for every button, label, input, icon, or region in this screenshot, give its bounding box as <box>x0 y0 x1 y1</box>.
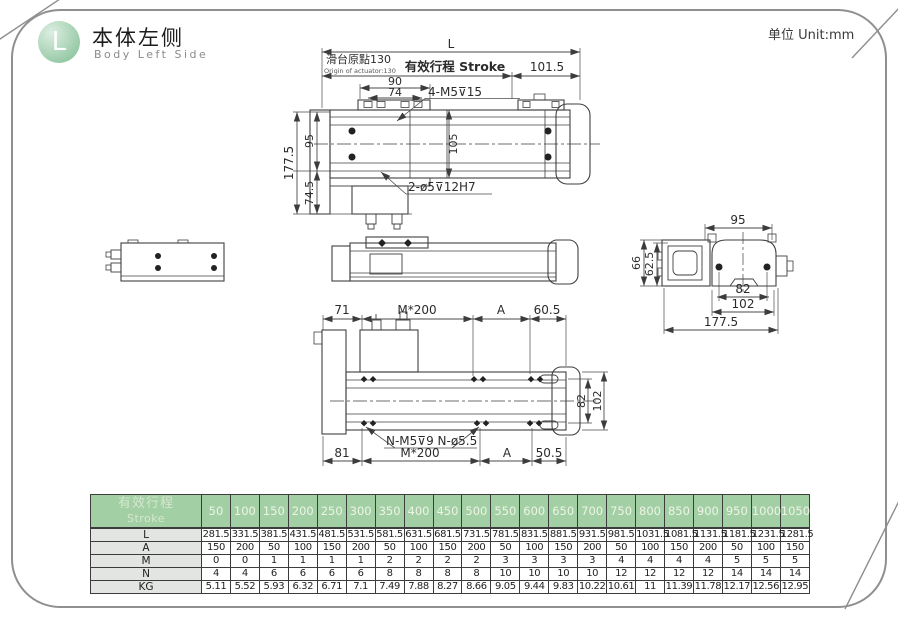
left-small-view-drawing <box>106 240 224 281</box>
stroke-header-en: Stroke <box>91 511 201 526</box>
table-cell: 4 <box>665 555 694 568</box>
table-cell: 150 <box>202 542 231 555</box>
dim-origin-en: Origin of actuator:130 <box>324 67 396 75</box>
callout-m5-holes: 4-M5⊽15 <box>428 85 482 99</box>
dim-end-top-width: 95 <box>730 213 745 227</box>
stroke-col-header: 850 <box>665 495 694 529</box>
table-cell: 100 <box>636 542 665 555</box>
dim-bv-top-right: 60.5 <box>534 303 561 317</box>
table-cell: 50 <box>375 542 404 555</box>
table-cell: 981.5 <box>607 528 636 542</box>
table-cell: 100 <box>751 542 780 555</box>
table-cell: 1 <box>259 555 288 568</box>
table-cell: 681.5 <box>433 528 462 542</box>
dim-height-upper: 95 <box>303 134 316 148</box>
table-cell: 9.05 <box>491 581 520 594</box>
table-cell: 1231.5 <box>751 528 780 542</box>
end-view-drawing <box>658 232 793 292</box>
table-cell: 4 <box>693 555 722 568</box>
dim-bv-right-inner: 82 <box>575 394 588 408</box>
table-row: L281.5331.5381.5431.5481.5531.5581.5631.… <box>91 528 810 542</box>
stroke-col-header: 450 <box>433 495 462 529</box>
table-cell: 9.83 <box>549 581 578 594</box>
table-header-row: 有效行程 Stroke 5010015020025030035040045050… <box>91 495 810 529</box>
table-cell: 1 <box>346 555 375 568</box>
table-cell: 381.5 <box>259 528 288 542</box>
dim-bv-right-outer: 102 <box>591 391 604 412</box>
stroke-col-header: 350 <box>375 495 404 529</box>
stroke-col-header: 500 <box>462 495 491 529</box>
table-cell: 6 <box>259 568 288 581</box>
table-cell: 781.5 <box>491 528 520 542</box>
dim-rail-width: 105 <box>447 134 460 155</box>
dim-bv-top-left: 71 <box>334 303 349 317</box>
table-cell: 3 <box>491 555 520 568</box>
stroke-col-header: 700 <box>578 495 607 529</box>
table-cell: 200 <box>346 542 375 555</box>
dim-end-base-width: 102 <box>732 297 755 311</box>
table-cell: 631.5 <box>404 528 433 542</box>
stroke-header-cell: 有效行程 Stroke <box>91 495 202 529</box>
table-cell: 150 <box>665 542 694 555</box>
table-cell: 2 <box>375 555 404 568</box>
bottom-view-drawing <box>314 312 596 435</box>
table-cell: 8 <box>433 568 462 581</box>
stroke-col-header: 200 <box>288 495 317 529</box>
stroke-col-header: 900 <box>693 495 722 529</box>
table-cell: 12 <box>636 568 665 581</box>
carriage-top <box>358 100 430 110</box>
side-view-drawing <box>332 237 578 284</box>
table-cell: 14 <box>751 568 780 581</box>
table-cell: 931.5 <box>578 528 607 542</box>
table-cell: 3 <box>549 555 578 568</box>
table-cell: 12 <box>693 568 722 581</box>
dim-end-height-total: 66 <box>630 256 643 270</box>
dim-bv-bottom-pitch: M*200 <box>400 446 439 460</box>
table-cell: 5 <box>722 555 751 568</box>
table-cell: 4 <box>636 555 665 568</box>
table-cell: 12.56 <box>751 581 780 594</box>
row-label: L <box>91 528 202 542</box>
table-cell: 8.27 <box>433 581 462 594</box>
table-cell: 10 <box>549 568 578 581</box>
callout-bottom-holes: N-M5⊽9 N-ø5.5 <box>386 434 477 448</box>
table-cell: 50 <box>722 542 751 555</box>
table-cell: 10.22 <box>578 581 607 594</box>
dim-end-slot-width: 82 <box>735 282 750 296</box>
table-cell: 10.61 <box>607 581 636 594</box>
table-cell: 6 <box>288 568 317 581</box>
end-block-top <box>518 94 564 110</box>
stroke-col-header: 650 <box>549 495 578 529</box>
table-cell: 50 <box>259 542 288 555</box>
table-cell: 5.93 <box>259 581 288 594</box>
stroke-col-header: 250 <box>317 495 346 529</box>
stroke-col-header: 1000 <box>751 495 780 529</box>
table-cell: 1 <box>288 555 317 568</box>
dim-bv-bottom-left: 81 <box>334 446 349 460</box>
table-cell: 150 <box>433 542 462 555</box>
table-cell: 100 <box>288 542 317 555</box>
table-cell: 581.5 <box>375 528 404 542</box>
dim-bv-top-a: A <box>497 303 506 317</box>
table-cell: 8 <box>462 568 491 581</box>
dim-height-total: 177.5 <box>282 146 296 180</box>
table-row: M001111222233334444555 <box>91 555 810 568</box>
table-cell: 10 <box>578 568 607 581</box>
dim-end-overall-width: 177.5 <box>704 315 738 329</box>
table-cell: 8 <box>375 568 404 581</box>
table-cell: 0 <box>202 555 231 568</box>
dim-bv-bottom-right: 50.5 <box>536 446 563 460</box>
table-cell: 4 <box>202 568 231 581</box>
unit-label: 单位 Unit:mm <box>768 24 854 43</box>
row-label: N <box>91 568 202 581</box>
table-cell: 14 <box>780 568 809 581</box>
page-subtitle: Body Left Side <box>94 48 208 61</box>
table-cell: 731.5 <box>462 528 491 542</box>
spec-table-body: L281.5331.5381.5431.5481.5531.5581.5631.… <box>91 528 810 594</box>
table-cell: 4 <box>607 555 636 568</box>
stroke-col-header: 300 <box>346 495 375 529</box>
table-cell: 50 <box>607 542 636 555</box>
dim-height-lower: 74.5 <box>303 181 316 206</box>
dim-end-height-inner: 62.5 <box>643 252 656 277</box>
table-cell: 3 <box>578 555 607 568</box>
top-view-labels: L 滑台原點130 Origin of actuator:130 有效行程 St… <box>282 37 564 205</box>
table-cell: 11 <box>636 581 665 594</box>
table-cell: 100 <box>520 542 549 555</box>
table-cell: 150 <box>780 542 809 555</box>
table-cell: 200 <box>230 542 259 555</box>
table-cell: 10 <box>491 568 520 581</box>
table-row: A150200501001502005010015020050100150200… <box>91 542 810 555</box>
table-cell: 150 <box>549 542 578 555</box>
table-cell: 14 <box>722 568 751 581</box>
table-row: N44666688881010101012121212141414 <box>91 568 810 581</box>
dim-stroke-label: 有效行程 Stroke <box>405 59 506 74</box>
table-cell: 50 <box>491 542 520 555</box>
table-cell: 11.78 <box>693 581 722 594</box>
stroke-col-header: 800 <box>636 495 665 529</box>
table-cell: 881.5 <box>549 528 578 542</box>
table-cell: 12.95 <box>780 581 809 594</box>
table-cell: 5 <box>780 555 809 568</box>
table-cell: 1281.5 <box>780 528 809 542</box>
table-cell: 200 <box>693 542 722 555</box>
table-cell: 5.11 <box>202 581 231 594</box>
stroke-col-header: 400 <box>404 495 433 529</box>
table-cell: 11.39 <box>665 581 694 594</box>
spec-table: 有效行程 Stroke 5010015020025030035040045050… <box>90 494 810 594</box>
stroke-col-header: 600 <box>520 495 549 529</box>
table-cell: 6 <box>346 568 375 581</box>
bottom-view-labels: 71 M*200 A 60.5 81 M*200 A 50.5 82 102 N… <box>334 303 604 460</box>
stroke-col-header: 1050 <box>780 495 809 529</box>
table-cell: 9.44 <box>520 581 549 594</box>
row-label: A <box>91 542 202 555</box>
table-cell: 331.5 <box>230 528 259 542</box>
table-cell: 6.71 <box>317 581 346 594</box>
table-cell: 7.88 <box>404 581 433 594</box>
table-cell: 3 <box>520 555 549 568</box>
section-badge: L <box>38 21 80 63</box>
table-cell: 200 <box>462 542 491 555</box>
table-cell: 431.5 <box>288 528 317 542</box>
stroke-col-header: 150 <box>259 495 288 529</box>
stroke-col-header: 950 <box>722 495 751 529</box>
table-cell: 12.17 <box>722 581 751 594</box>
table-cell: 281.5 <box>202 528 231 542</box>
table-cell: 831.5 <box>520 528 549 542</box>
dim-origin-cn: 滑台原點130 <box>326 52 391 66</box>
row-label: KG <box>91 581 202 594</box>
section-badge-letter: L <box>52 27 67 57</box>
table-cell: 5.52 <box>230 581 259 594</box>
stroke-col-header: 100 <box>230 495 259 529</box>
stroke-col-header: 750 <box>607 495 636 529</box>
table-row: KG5.115.525.936.326.717.17.497.888.278.6… <box>91 581 810 594</box>
stroke-col-header: 550 <box>491 495 520 529</box>
table-cell: 2 <box>433 555 462 568</box>
dim-carriage-inner: 74 <box>388 86 402 99</box>
table-cell: 7.49 <box>375 581 404 594</box>
table-cell: 2 <box>462 555 491 568</box>
table-cell: 100 <box>404 542 433 555</box>
stroke-header-cn: 有效行程 <box>91 496 201 511</box>
table-cell: 0 <box>230 555 259 568</box>
dim-bv-top-pitch: M*200 <box>397 303 436 317</box>
table-cell: 1081.5 <box>665 528 694 542</box>
table-cell: 481.5 <box>317 528 346 542</box>
table-cell: 150 <box>317 542 346 555</box>
table-cell: 7.1 <box>346 581 375 594</box>
table-cell: 12 <box>607 568 636 581</box>
table-cell: 2 <box>404 555 433 568</box>
table-cell: 6.32 <box>288 581 317 594</box>
table-cell: 1131.5 <box>693 528 722 542</box>
table-cell: 12 <box>665 568 694 581</box>
stroke-col-header: 50 <box>202 495 231 529</box>
callout-dowel-pins: 2-ø5⊽12H7 <box>408 180 476 194</box>
table-cell: 6 <box>317 568 346 581</box>
table-cell: 1181.5 <box>722 528 751 542</box>
table-cell: 5 <box>751 555 780 568</box>
motor-block-top <box>352 186 408 229</box>
row-label: M <box>91 555 202 568</box>
table-cell: 4 <box>230 568 259 581</box>
table-cell: 10 <box>520 568 549 581</box>
table-cell: 1031.5 <box>636 528 665 542</box>
dim-overall-length: L <box>448 37 455 51</box>
table-cell: 200 <box>578 542 607 555</box>
top-view-drawing <box>310 94 600 229</box>
table-cell: 531.5 <box>346 528 375 542</box>
table-cell: 8 <box>404 568 433 581</box>
dim-bv-bottom-a: A <box>503 446 512 460</box>
dim-right-offset: 101.5 <box>530 60 564 74</box>
table-cell: 8.66 <box>462 581 491 594</box>
table-cell: 1 <box>317 555 346 568</box>
